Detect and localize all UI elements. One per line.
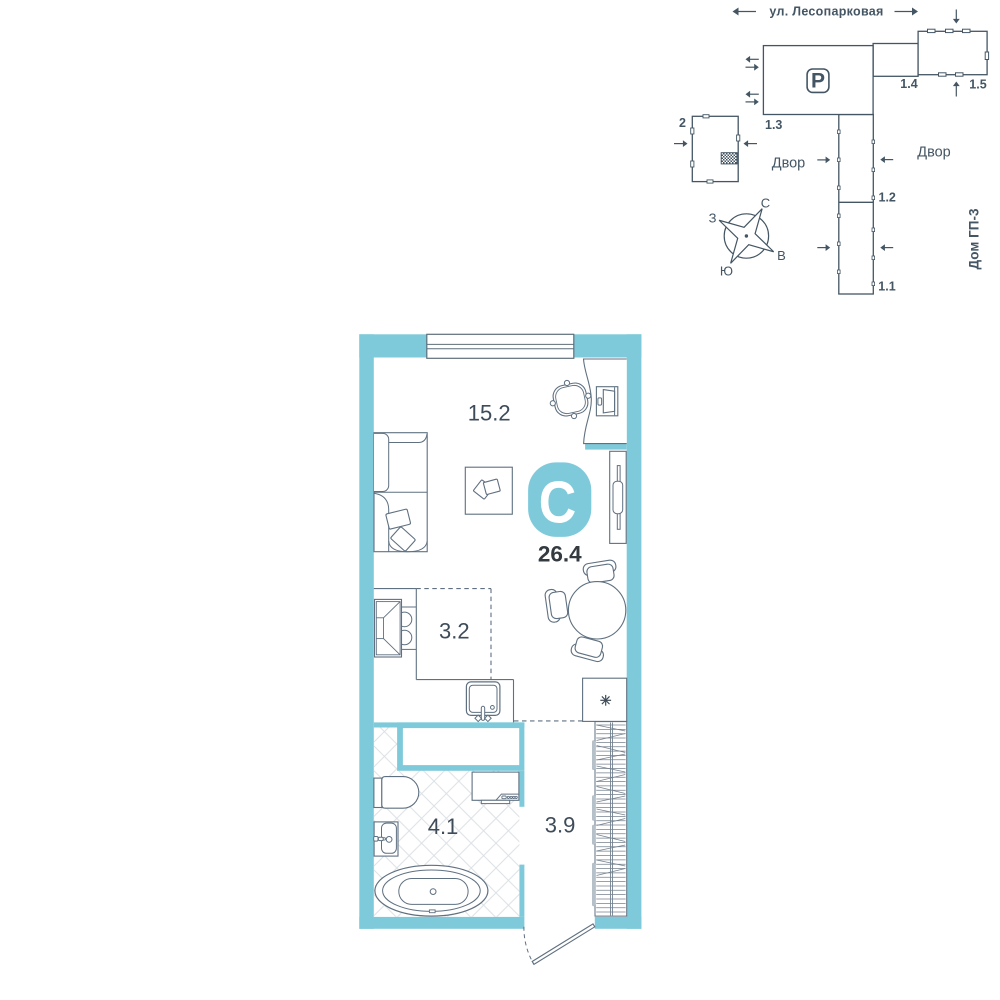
svg-text:P: P xyxy=(811,70,825,93)
svg-text:2: 2 xyxy=(679,116,686,130)
svg-text:15.2: 15.2 xyxy=(468,401,511,426)
svg-text:3.2: 3.2 xyxy=(439,619,470,644)
svg-text:1.1: 1.1 xyxy=(878,280,895,294)
svg-text:Ю: Ю xyxy=(720,264,733,279)
svg-text:1.3: 1.3 xyxy=(765,118,782,132)
svg-text:26.4: 26.4 xyxy=(538,542,582,567)
svg-text:1.5: 1.5 xyxy=(969,78,986,92)
svg-text:1.2: 1.2 xyxy=(879,191,896,205)
svg-text:С: С xyxy=(761,196,770,211)
svg-text:4.1: 4.1 xyxy=(428,814,459,839)
svg-text:С: С xyxy=(539,470,577,536)
svg-text:В: В xyxy=(777,248,786,263)
svg-text:1.4: 1.4 xyxy=(900,77,917,91)
svg-text:ул. Лесопарковая: ул. Лесопарковая xyxy=(769,5,883,19)
svg-text:3.9: 3.9 xyxy=(545,813,576,838)
svg-text:Двор: Двор xyxy=(917,145,951,161)
svg-text:Дом ГП-3: Дом ГП-3 xyxy=(967,208,982,269)
svg-text:З: З xyxy=(709,211,717,226)
svg-text:Двор: Двор xyxy=(772,156,806,172)
